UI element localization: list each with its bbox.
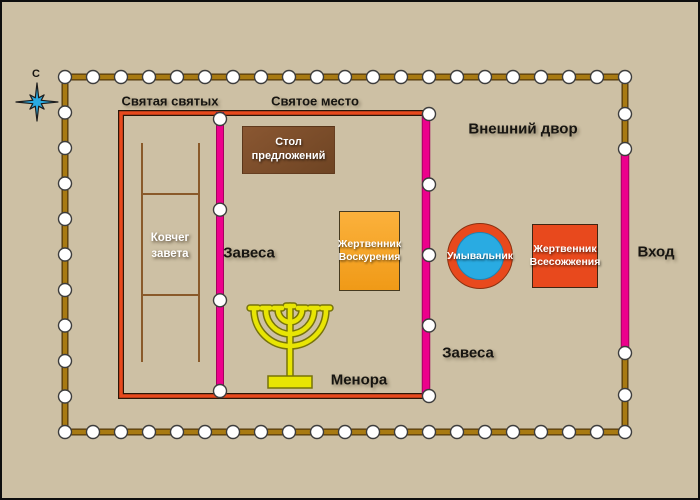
incense-altar: Жертвенник Воскурения	[339, 211, 400, 291]
fence-post	[199, 426, 212, 439]
fence-post	[535, 71, 548, 84]
laver-label: Умывальник	[447, 250, 513, 262]
laver: Умывальник	[447, 223, 513, 289]
fence-post	[619, 143, 632, 156]
fence-post	[619, 389, 632, 402]
fence-post	[87, 426, 100, 439]
fence-post	[423, 249, 436, 262]
fence-post	[59, 248, 72, 261]
fence-post	[214, 294, 227, 307]
fence-post	[59, 106, 72, 119]
fence-post	[255, 426, 268, 439]
court-veil-label: Завеса	[442, 345, 494, 362]
menorah-icon	[250, 306, 330, 388]
fence-post	[507, 426, 520, 439]
fence-post	[423, 108, 436, 121]
fence-post	[339, 426, 352, 439]
fence-post	[227, 71, 240, 84]
fence-post	[59, 390, 72, 403]
fence-post	[115, 426, 128, 439]
fence-post	[214, 385, 227, 398]
fence-post	[339, 71, 352, 84]
fence-post	[255, 71, 268, 84]
fence-post	[367, 71, 380, 84]
fence-post	[59, 355, 72, 368]
fence-post	[451, 426, 464, 439]
fence-post	[535, 426, 548, 439]
fence-post	[214, 113, 227, 126]
zone-label-holy-of-holies: Святая святых	[122, 94, 219, 109]
zone-label-outer-court: Внешний двор	[468, 121, 577, 138]
fence-post	[451, 71, 464, 84]
fence-post	[563, 426, 576, 439]
fence-post	[423, 319, 436, 332]
fence-post	[311, 71, 324, 84]
inner-veil-label: Завеса	[223, 245, 275, 262]
fence-post	[619, 426, 632, 439]
fence-post	[479, 71, 492, 84]
fence-post	[143, 426, 156, 439]
fence-post	[59, 213, 72, 226]
fence-post	[507, 71, 520, 84]
fence-post	[423, 390, 436, 403]
fence-post	[591, 426, 604, 439]
fence-post	[619, 71, 632, 84]
fence-post	[227, 426, 240, 439]
menorah-label: Менора	[331, 372, 388, 389]
fence-post	[59, 426, 72, 439]
fence-post	[283, 71, 296, 84]
zone-label-holy-place: Святое место	[271, 94, 359, 109]
incense-altar-label: Жертвенник Воскурения	[338, 238, 401, 264]
fence-post	[171, 426, 184, 439]
entrance-label: Вход	[637, 244, 674, 261]
fence-post	[563, 71, 576, 84]
ark-label: Ковчег завета	[135, 230, 205, 262]
fence-post	[283, 426, 296, 439]
fence-post	[59, 71, 72, 84]
fence-post	[367, 426, 380, 439]
compass-north-label: С	[32, 68, 40, 80]
fence-post	[59, 177, 72, 190]
fence-post	[87, 71, 100, 84]
fence-post	[395, 426, 408, 439]
fence-post	[214, 203, 227, 216]
fence-post	[311, 426, 324, 439]
burnt-offering-altar-label: Жертвенник Всесожжения	[530, 243, 601, 269]
tabernacle-diagram: Стол предложений Жертвенник Воскурения Ж…	[0, 0, 700, 500]
compass-icon	[16, 83, 58, 121]
showbread-table: Стол предложений	[242, 126, 335, 174]
fence-post	[395, 71, 408, 84]
fence-post	[199, 71, 212, 84]
fence-post	[423, 71, 436, 84]
fence-post	[423, 178, 436, 191]
fence-post	[59, 142, 72, 155]
fence-post	[619, 108, 632, 121]
fence-post	[479, 426, 492, 439]
fence-post	[115, 71, 128, 84]
burnt-offering-altar: Жертвенник Всесожжения	[532, 224, 598, 288]
showbread-table-label: Стол предложений	[243, 136, 334, 164]
fence-post	[59, 319, 72, 332]
fence-post	[423, 426, 436, 439]
fence-post	[619, 347, 632, 360]
fence-post	[59, 284, 72, 297]
fence-post	[171, 71, 184, 84]
fence-post	[591, 71, 604, 84]
fence-post	[143, 71, 156, 84]
